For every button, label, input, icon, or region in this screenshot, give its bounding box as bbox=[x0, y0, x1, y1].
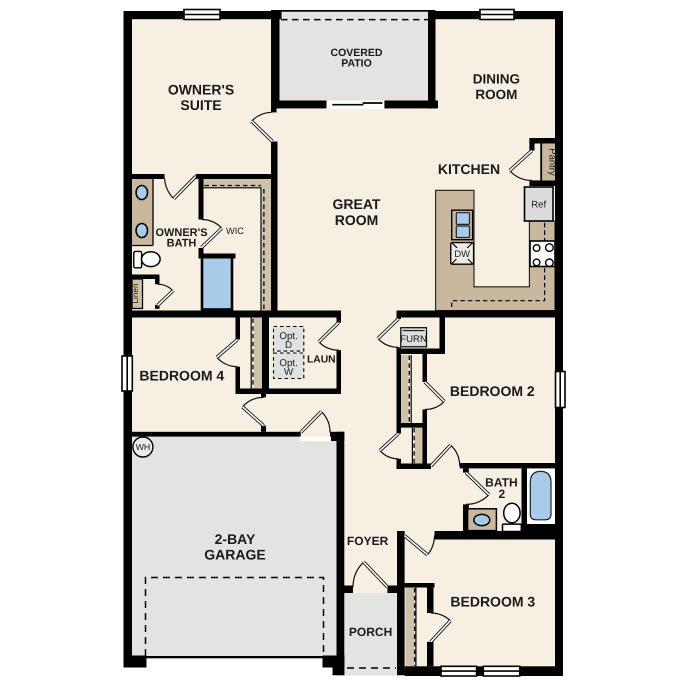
svg-text:ROOM: ROOM bbox=[335, 212, 379, 228]
svg-text:WIC: WIC bbox=[226, 226, 244, 236]
svg-text:LAUN: LAUN bbox=[307, 355, 336, 366]
svg-text:Ref: Ref bbox=[531, 199, 546, 210]
svg-text:W: W bbox=[284, 367, 294, 378]
svg-text:GARAGE: GARAGE bbox=[204, 546, 265, 562]
svg-text:GREAT: GREAT bbox=[333, 196, 381, 212]
svg-text:Pantry: Pantry bbox=[546, 148, 557, 176]
svg-text:BEDROOM 2: BEDROOM 2 bbox=[450, 383, 535, 399]
svg-text:OWNER'S: OWNER'S bbox=[168, 82, 234, 98]
svg-text:PATIO: PATIO bbox=[341, 58, 372, 70]
svg-text:DINING: DINING bbox=[473, 71, 520, 86]
svg-text:SUITE: SUITE bbox=[180, 97, 221, 113]
svg-text:D: D bbox=[285, 340, 292, 351]
svg-text:DW: DW bbox=[454, 248, 470, 259]
svg-text:PORCH: PORCH bbox=[349, 625, 392, 639]
svg-text:WH: WH bbox=[136, 442, 151, 452]
svg-text:ROOM: ROOM bbox=[475, 87, 517, 102]
svg-text:2: 2 bbox=[499, 487, 506, 501]
svg-text:KITCHEN: KITCHEN bbox=[438, 161, 500, 177]
svg-text:FURN: FURN bbox=[400, 334, 427, 345]
svg-text:FOYER: FOYER bbox=[347, 534, 389, 548]
svg-text:2-BAY: 2-BAY bbox=[215, 531, 256, 547]
svg-text:BEDROOM 3: BEDROOM 3 bbox=[450, 593, 535, 609]
svg-text:BATH: BATH bbox=[167, 238, 197, 250]
svg-text:BEDROOM 4: BEDROOM 4 bbox=[139, 367, 224, 383]
svg-text:Linen: Linen bbox=[131, 283, 140, 303]
